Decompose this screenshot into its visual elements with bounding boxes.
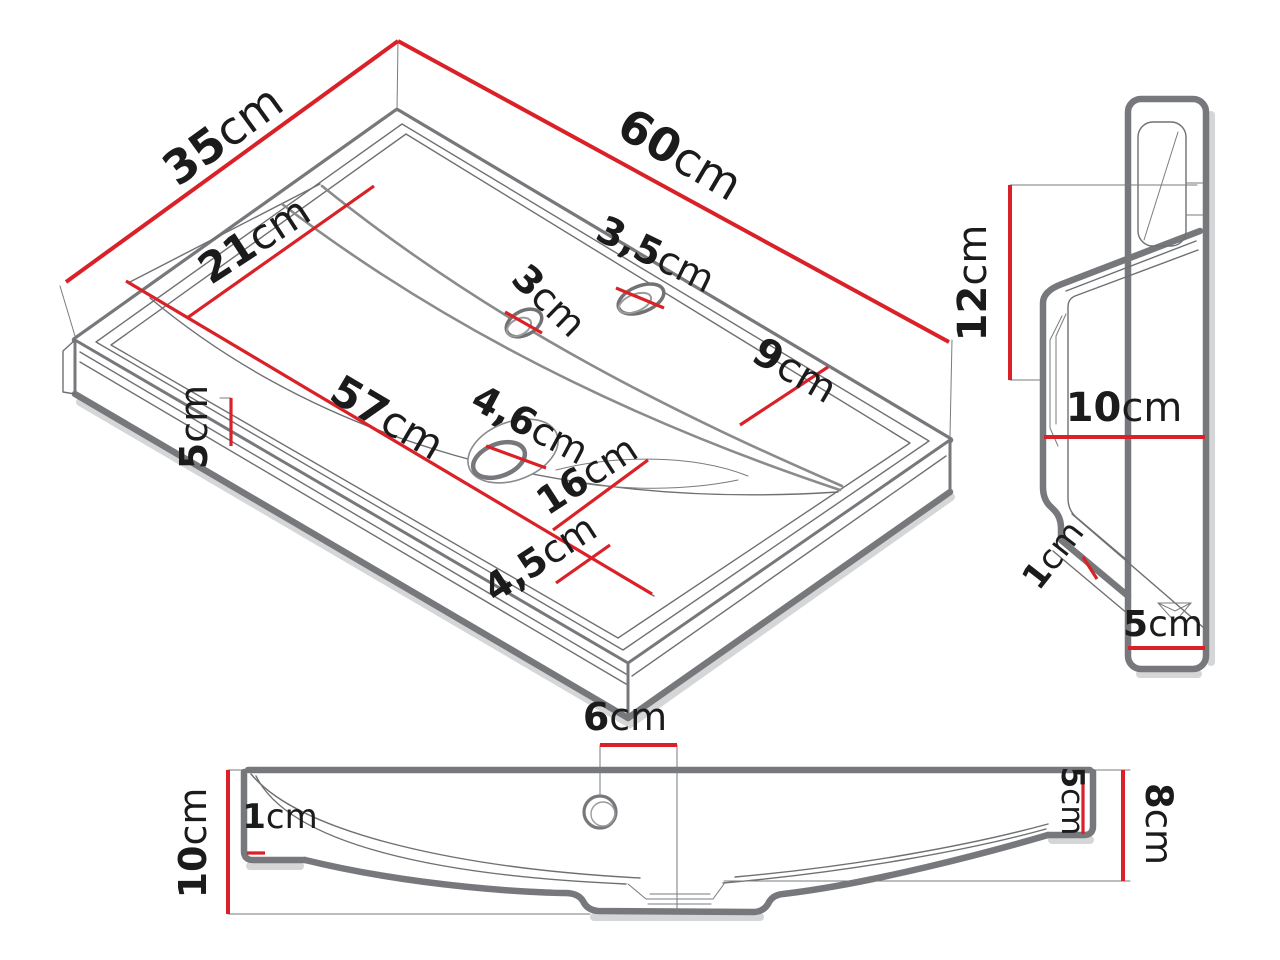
dim-label-10cm-front: 10cm <box>171 788 215 899</box>
technical-drawing: 35cm 60cm 21cm 3cm 3,5cm 9cm 57cm 5cm 4,… <box>0 0 1280 960</box>
front-shadow <box>250 840 1090 917</box>
dim-label-5cm-iso: 5cm <box>172 385 216 469</box>
side-top-inner-diag <box>1144 132 1204 240</box>
drawing-canvas: 35cm 60cm 21cm 3cm 3,5cm 9cm 57cm 5cm 4,… <box>0 0 1280 960</box>
dim-label-5cm-front: 5cm <box>1054 767 1090 836</box>
dim-label-10cm-side: 10cm <box>1066 385 1183 431</box>
dim-label-1cm-front: 1cm <box>242 797 318 837</box>
side-bowl-band <box>1050 314 1066 446</box>
side-view: 12cm 10cm 1cm 5cm <box>950 99 1211 674</box>
front-faucet-hole <box>584 796 616 828</box>
iso-left-corner-facet <box>63 340 75 394</box>
side-extension-lines <box>1010 185 1197 380</box>
isometric-view: 35cm 60cm 21cm 3cm 3,5cm 9cm 57cm 5cm 4,… <box>60 41 952 724</box>
dim-label-8cm: 8cm <box>1137 783 1180 865</box>
dim-label-6cm: 6cm <box>583 695 667 739</box>
front-view: 6cm 1cm 10cm 5cm 8cm <box>171 695 1180 917</box>
dim-label-5cm-side: 5cm <box>1123 604 1203 645</box>
front-trap-detail <box>628 884 724 904</box>
dim-label-12cm: 12cm <box>950 225 996 342</box>
